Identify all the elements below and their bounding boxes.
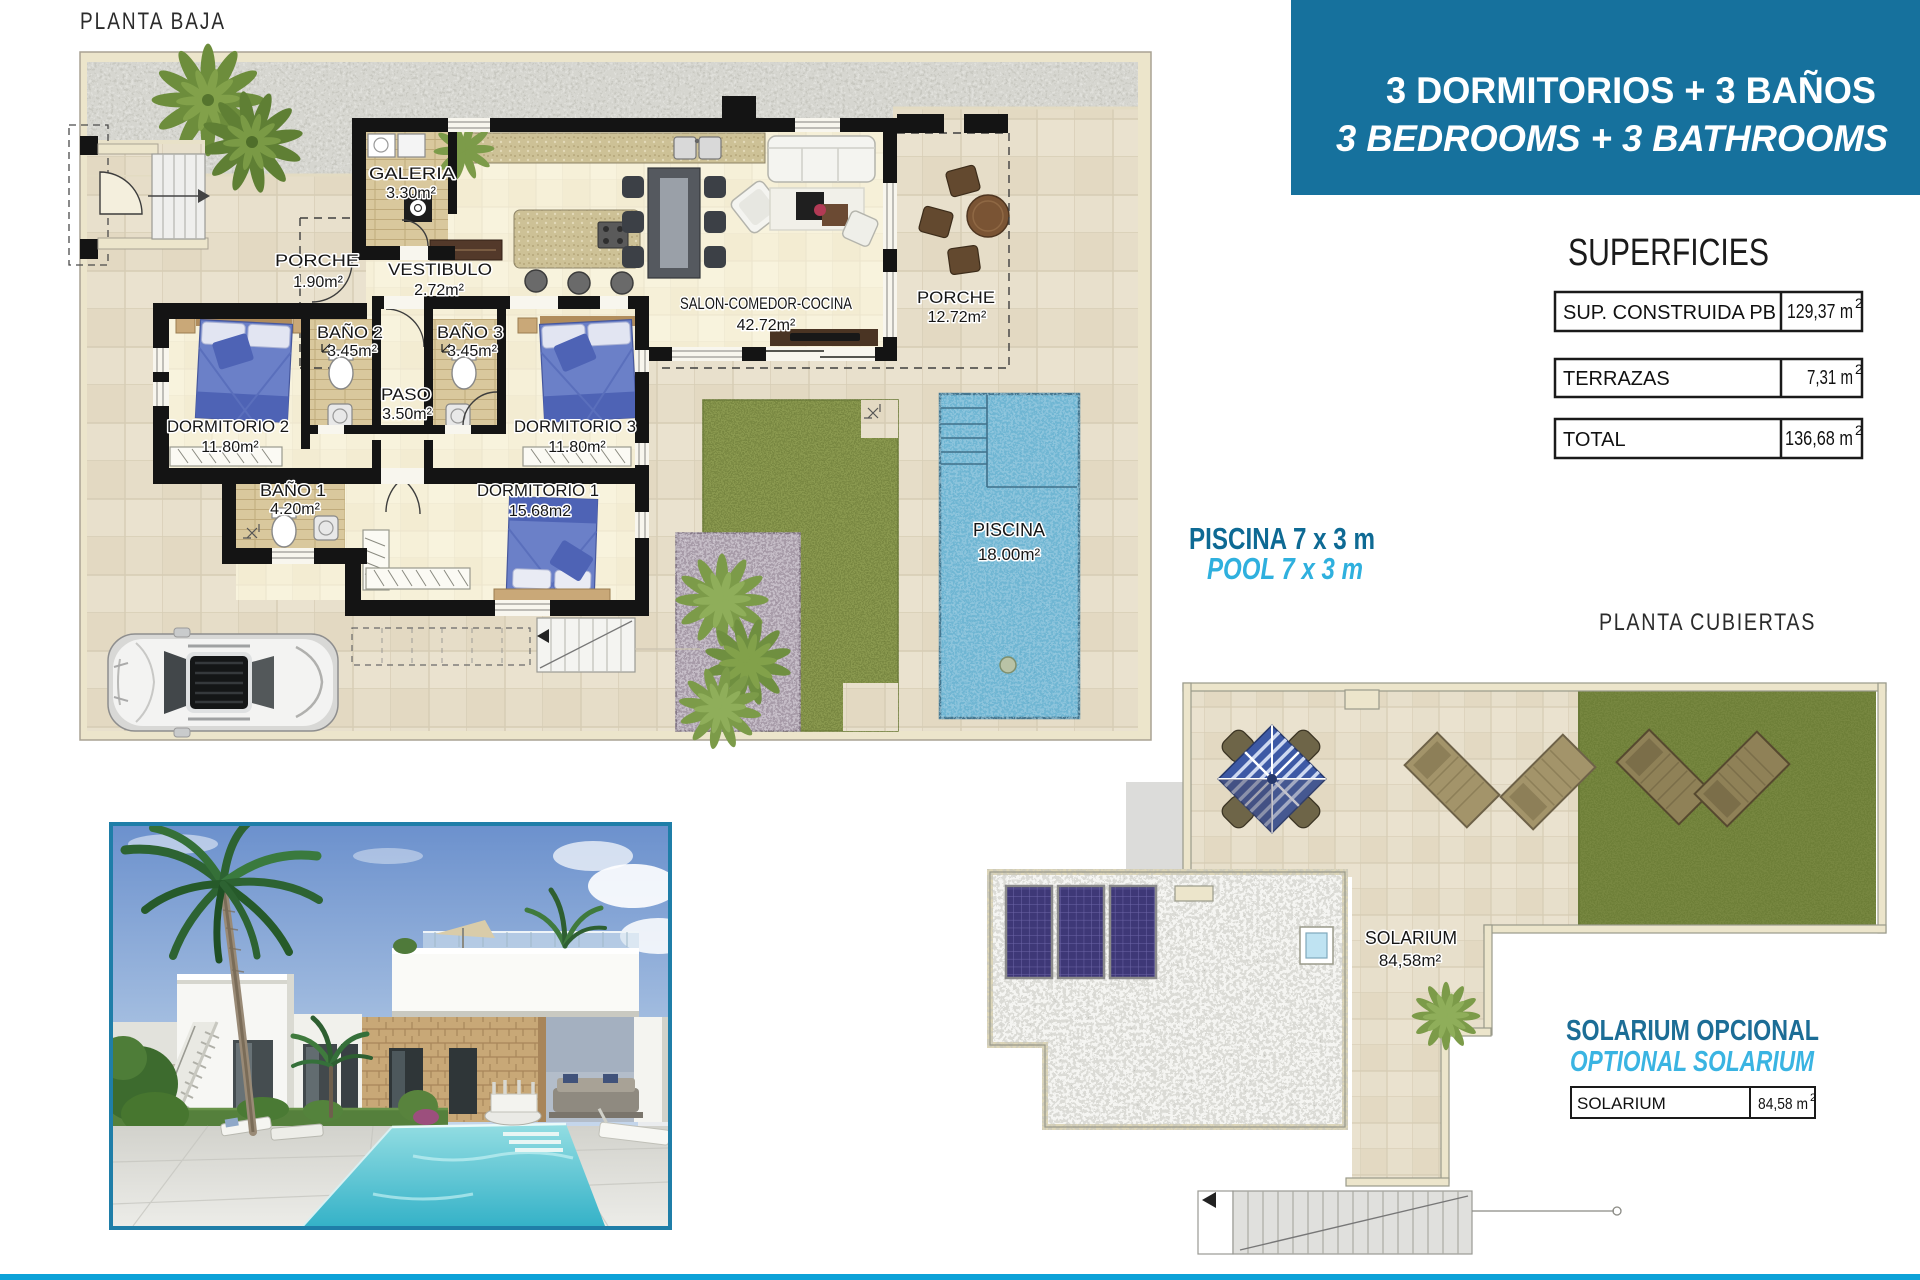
svg-text:DORMITORIO 3: DORMITORIO 3: [514, 417, 636, 436]
svg-text:7,31 m: 7,31 m: [1807, 367, 1853, 389]
svg-text:11.80m²: 11.80m²: [201, 439, 259, 456]
svg-text:84,58m²: 84,58m²: [1379, 951, 1442, 970]
svg-text:PORCHE: PORCHE: [275, 251, 359, 270]
svg-text:2: 2: [1855, 295, 1863, 311]
svg-text:BAÑO 1: BAÑO 1: [260, 481, 326, 500]
svg-text:DORMITORIO 1: DORMITORIO 1: [477, 481, 599, 500]
svg-text:1.90m²: 1.90m²: [293, 274, 343, 291]
svg-text:PORCHE: PORCHE: [917, 288, 995, 307]
svg-text:3.45m²: 3.45m²: [327, 343, 377, 360]
svg-text:2: 2: [1855, 361, 1863, 377]
svg-text:OPTIONAL SOLARIUM: OPTIONAL SOLARIUM: [1570, 1046, 1815, 1078]
svg-text:2: 2: [1855, 422, 1863, 438]
svg-text:12.72m²: 12.72m²: [928, 309, 987, 326]
svg-text:136,68 m: 136,68 m: [1785, 428, 1853, 450]
svg-text:PISCINA: PISCINA: [973, 520, 1045, 540]
svg-text:84,58 m: 84,58 m: [1758, 1096, 1808, 1113]
svg-text:BAÑO 2: BAÑO 2: [317, 323, 383, 342]
svg-text:BAÑO 3: BAÑO 3: [437, 323, 503, 342]
svg-text:3.45m²: 3.45m²: [447, 343, 497, 360]
svg-text:SOLARIUM: SOLARIUM: [1577, 1094, 1666, 1113]
svg-text:PASO: PASO: [381, 385, 431, 404]
svg-text:SOLARIUM: SOLARIUM: [1365, 928, 1457, 948]
svg-text:SOLARIUM OPCIONAL: SOLARIUM OPCIONAL: [1566, 1015, 1819, 1047]
svg-text:SALON-COMEDOR-COCINA: SALON-COMEDOR-COCINA: [680, 294, 852, 313]
svg-text:PLANTA BAJA: PLANTA BAJA: [80, 8, 226, 35]
svg-text:3.50m²: 3.50m²: [382, 406, 432, 423]
svg-text:GALERIA: GALERIA: [369, 164, 456, 183]
svg-text:SUP. CONSTRUIDA PB: SUP. CONSTRUIDA PB: [1563, 302, 1776, 324]
svg-text:TERRAZAS: TERRAZAS: [1563, 368, 1670, 390]
svg-text:SUPERFICIES: SUPERFICIES: [1568, 232, 1769, 274]
svg-text:4.20m²: 4.20m²: [270, 501, 320, 518]
svg-text:DORMITORIO 2: DORMITORIO 2: [167, 417, 289, 436]
svg-text:15.68m2: 15.68m2: [509, 503, 571, 520]
svg-text:129,37 m: 129,37 m: [1787, 301, 1853, 323]
svg-text:TOTAL: TOTAL: [1563, 429, 1626, 451]
svg-text:11.80m²: 11.80m²: [548, 439, 606, 456]
svg-text:3 DORMITORIOS + 3 BAÑOS: 3 DORMITORIOS + 3 BAÑOS: [1386, 69, 1876, 111]
svg-text:VESTIBULO: VESTIBULO: [388, 260, 492, 279]
svg-text:2: 2: [1810, 1092, 1816, 1104]
svg-text:3.30m²: 3.30m²: [386, 185, 436, 202]
svg-text:3 BEDROOMS + 3 BATHROOMS: 3 BEDROOMS + 3 BATHROOMS: [1336, 118, 1888, 159]
svg-text:18.00m²: 18.00m²: [978, 545, 1041, 564]
svg-text:PLANTA CUBIERTAS: PLANTA CUBIERTAS: [1599, 609, 1816, 636]
svg-text:POOL 7 x 3 m: POOL 7 x 3 m: [1207, 551, 1363, 586]
svg-text:2.72m²: 2.72m²: [414, 282, 464, 299]
svg-text:42.72m²: 42.72m²: [737, 317, 796, 334]
